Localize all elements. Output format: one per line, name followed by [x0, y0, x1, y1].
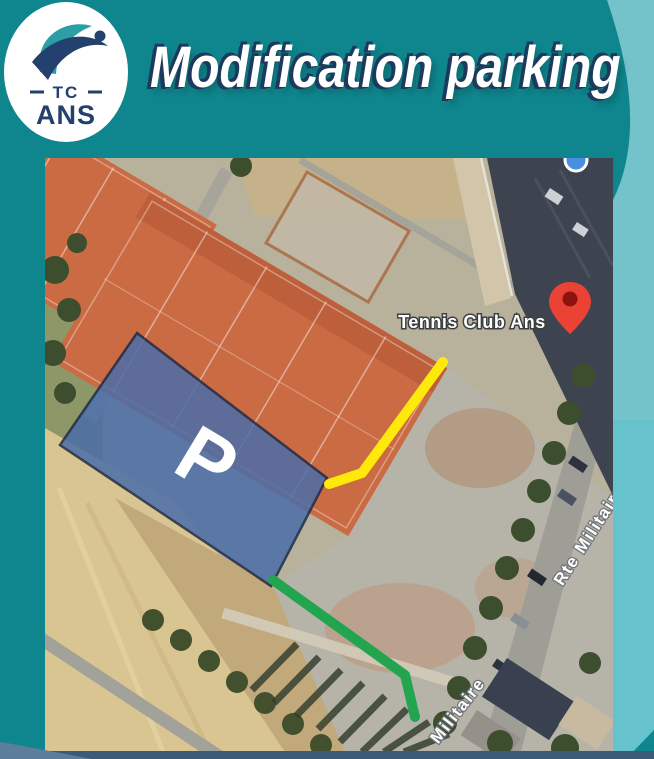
- page-title: Modification parking: [150, 34, 621, 101]
- flyer-page: TC ANS Modification parking: [0, 0, 654, 759]
- ball-icon: [95, 31, 106, 42]
- satellite-map: P Tennis Club Ans Rte Militaire Militair…: [45, 158, 613, 752]
- place-label: Tennis Club Ans: [398, 312, 546, 332]
- location-dot-icon: [565, 158, 587, 171]
- logo-ans: ANS: [36, 100, 96, 130]
- tc-ans-logo: TC ANS: [2, 0, 134, 150]
- bottom-bar: [0, 751, 654, 759]
- corner-curve-highlight: [613, 420, 654, 759]
